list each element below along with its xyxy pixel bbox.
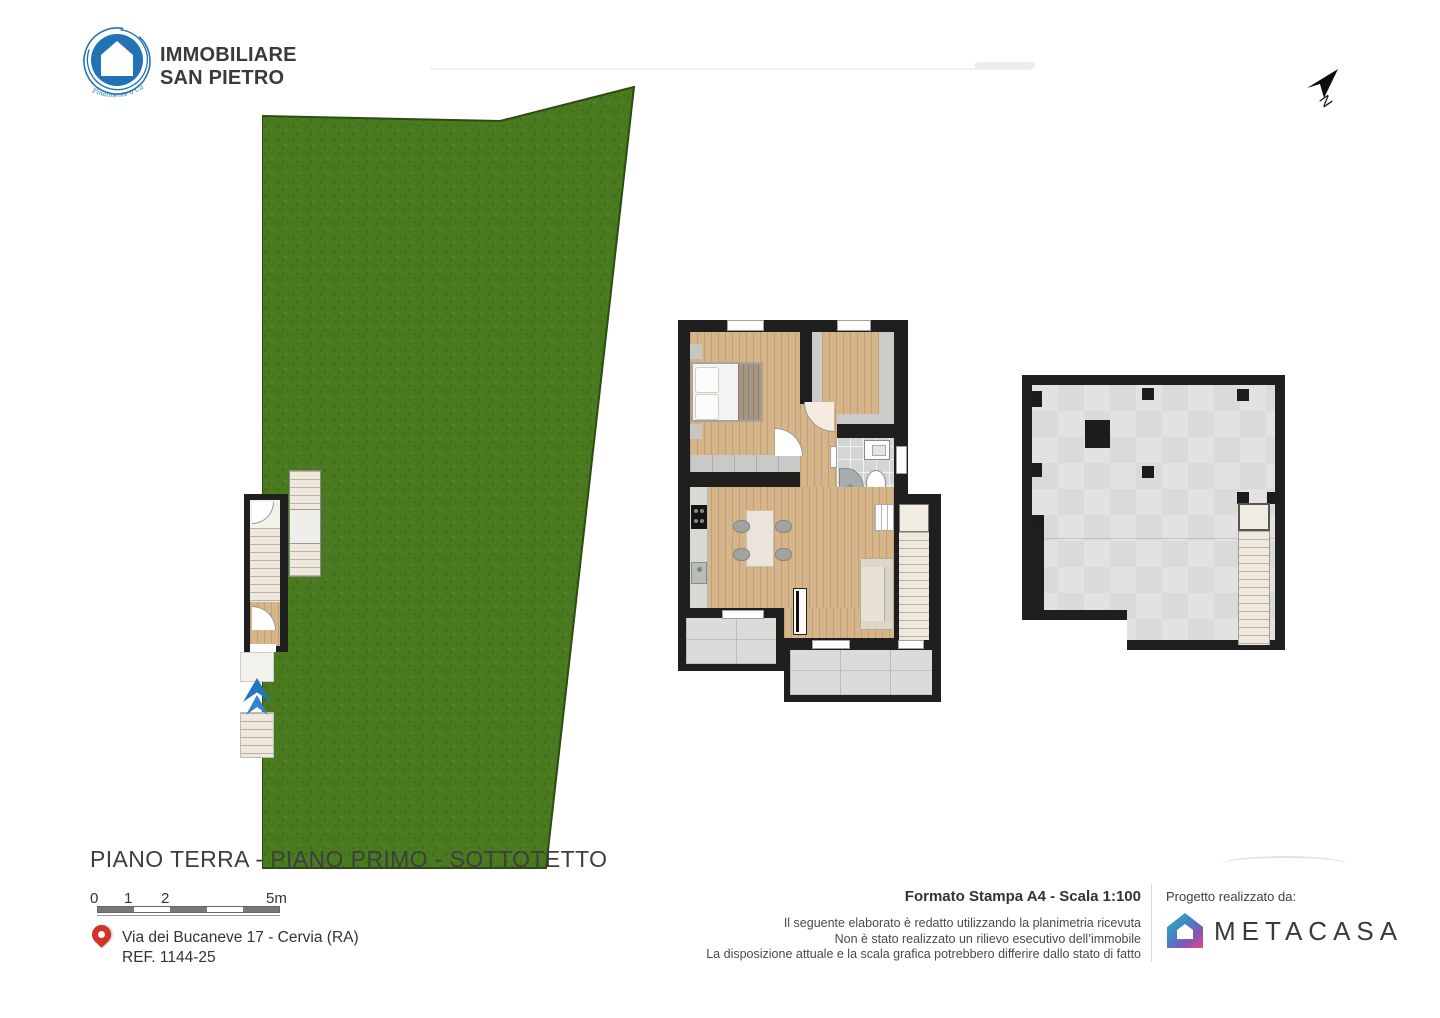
window — [722, 610, 764, 619]
stair-railing — [874, 504, 894, 531]
disclaimer: Il seguente elaborato è redatto utilizza… — [706, 916, 1141, 963]
nightstand — [690, 344, 702, 359]
pillar — [1142, 466, 1154, 478]
window — [812, 640, 850, 649]
exterior-stairs-landing — [290, 509, 320, 544]
staircase — [899, 532, 929, 640]
stairwell-block — [894, 494, 941, 650]
dining-chair — [775, 548, 792, 561]
address-line: Via dei Bucaneve 17 - Cervia (RA) — [122, 928, 359, 948]
print-format: Formato Stampa A4 - Scala 1:100 — [706, 888, 1141, 905]
address-block: Via dei Bucaneve 17 - Cervia (RA) REF. 1… — [122, 928, 359, 968]
scale-label-2: 2 — [161, 890, 169, 907]
stair-landing — [899, 504, 929, 532]
entry-lower-stairs — [240, 712, 274, 758]
exterior-stairs — [289, 470, 321, 577]
stove — [691, 505, 707, 529]
sofa — [860, 558, 894, 630]
nightstand — [690, 424, 702, 439]
window — [898, 640, 924, 649]
metacasa-brand: METACASA — [1214, 916, 1403, 947]
first-floor-plan — [678, 320, 908, 650]
window — [837, 320, 871, 331]
dining-chair — [775, 520, 792, 533]
faint-top-line — [430, 68, 1030, 70]
scale-bar — [97, 906, 280, 913]
scale-label-1: 1 — [124, 890, 132, 907]
window — [896, 446, 907, 474]
pillar — [1142, 388, 1154, 400]
pillar — [1237, 389, 1249, 401]
entrance-arrow-icon — [243, 678, 271, 718]
entry-stairs — [250, 528, 280, 602]
location-pin-icon — [88, 921, 115, 948]
floorplan-sheet: Finalmente a Casa IMMOBILIARE SAN PIETRO… — [0, 0, 1440, 1018]
scale-label-5m: 5m — [266, 890, 287, 907]
credit-label: Progetto realizzato da: — [1166, 889, 1296, 904]
dining-chair — [733, 548, 750, 561]
plan-title: PIANO TERRA - PIANO PRIMO - SOTTOTETTO — [90, 846, 607, 873]
dining-table — [746, 510, 774, 567]
agency-name-line1: IMMOBILIARE — [160, 44, 297, 67]
attic-staircase — [1238, 531, 1270, 645]
attic-floor-plan — [1022, 375, 1285, 650]
wall-notch — [1032, 515, 1044, 528]
wall-notch — [1032, 463, 1042, 477]
metacasa-logo-icon — [1166, 912, 1206, 950]
entry-stairwell — [244, 494, 288, 652]
address-ref: REF. 1144-25 — [122, 948, 359, 968]
double-bed — [691, 362, 763, 422]
bathroom-sink — [864, 440, 890, 460]
faint-top-shape — [975, 62, 1035, 69]
tv-unit — [793, 588, 807, 635]
agency-logo: Finalmente a Casa — [80, 24, 156, 109]
window — [727, 320, 764, 331]
faint-shadow-arc — [1222, 856, 1347, 872]
chimney — [1085, 420, 1110, 448]
kitchen-sink — [691, 562, 707, 584]
terrace-right — [790, 650, 932, 695]
attic-stair-landing — [1238, 503, 1270, 531]
terrace-left — [686, 618, 778, 664]
dining-chair — [733, 520, 750, 533]
wall-notch — [1032, 391, 1042, 407]
agency-logo-icon: Finalmente a Casa — [80, 24, 156, 104]
wardrobe — [690, 455, 800, 472]
scale-label-0: 0 — [90, 890, 98, 907]
print-info: Formato Stampa A4 - Scala 1:100 Il segue… — [706, 888, 1141, 963]
footer-divider — [1151, 884, 1152, 962]
bathroom-door-opening — [830, 446, 837, 468]
